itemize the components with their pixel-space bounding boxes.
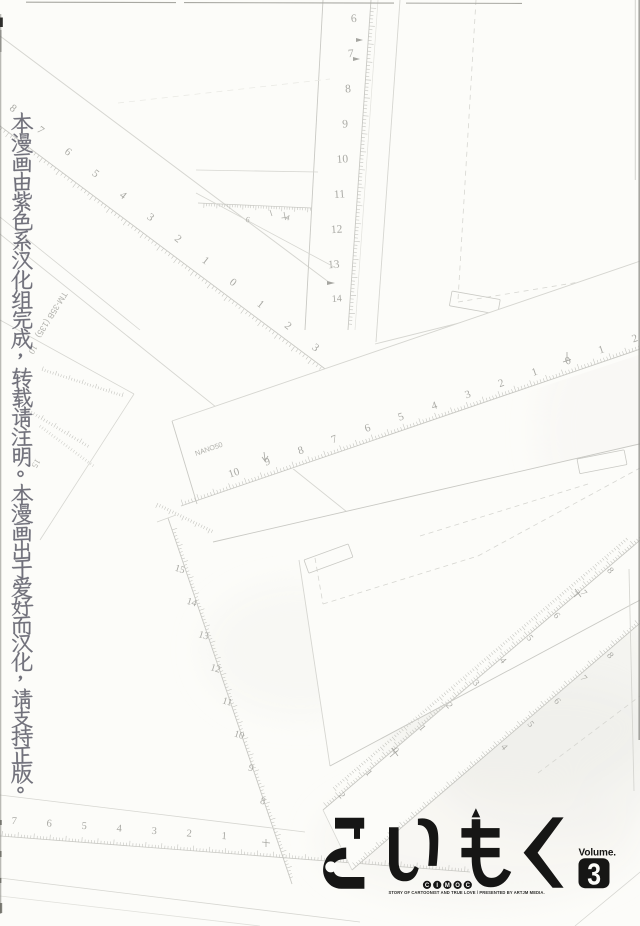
svg-text:TM-35B (135): TM-35B (135) — [33, 290, 69, 340]
svg-text:C: C — [466, 883, 471, 889]
svg-text:13: 13 — [328, 259, 341, 272]
svg-text:9: 9 — [247, 763, 255, 775]
svg-text:M: M — [445, 883, 450, 889]
svg-text:8: 8 — [345, 83, 352, 95]
svg-text:12: 12 — [331, 224, 344, 237]
svg-text:14: 14 — [331, 293, 342, 305]
svg-text:STORY OF CARTOONIST AND TRUE L: STORY OF CARTOONIST AND TRUE LOVE / PRES… — [389, 890, 545, 895]
svg-text:15: 15 — [29, 457, 43, 470]
svg-text:1: 1 — [221, 831, 227, 842]
svg-text:6: 6 — [351, 13, 358, 25]
svg-text:10: 10 — [336, 153, 349, 166]
svg-text:O: O — [455, 883, 460, 889]
svg-text:6: 6 — [46, 818, 52, 829]
svg-text:3: 3 — [587, 857, 601, 891]
svg-text:4: 4 — [116, 823, 123, 834]
svg-text:9: 9 — [342, 118, 349, 130]
svg-text:11: 11 — [334, 188, 346, 201]
svg-text:2: 2 — [186, 828, 192, 839]
svg-text:C: C — [425, 883, 430, 889]
svg-text:5: 5 — [81, 821, 87, 832]
svg-text:14: 14 — [185, 596, 198, 609]
svg-text:7: 7 — [11, 816, 17, 827]
svg-text:3: 3 — [151, 826, 157, 837]
svg-text:15: 15 — [173, 563, 186, 576]
svg-text:11: 11 — [221, 696, 233, 709]
